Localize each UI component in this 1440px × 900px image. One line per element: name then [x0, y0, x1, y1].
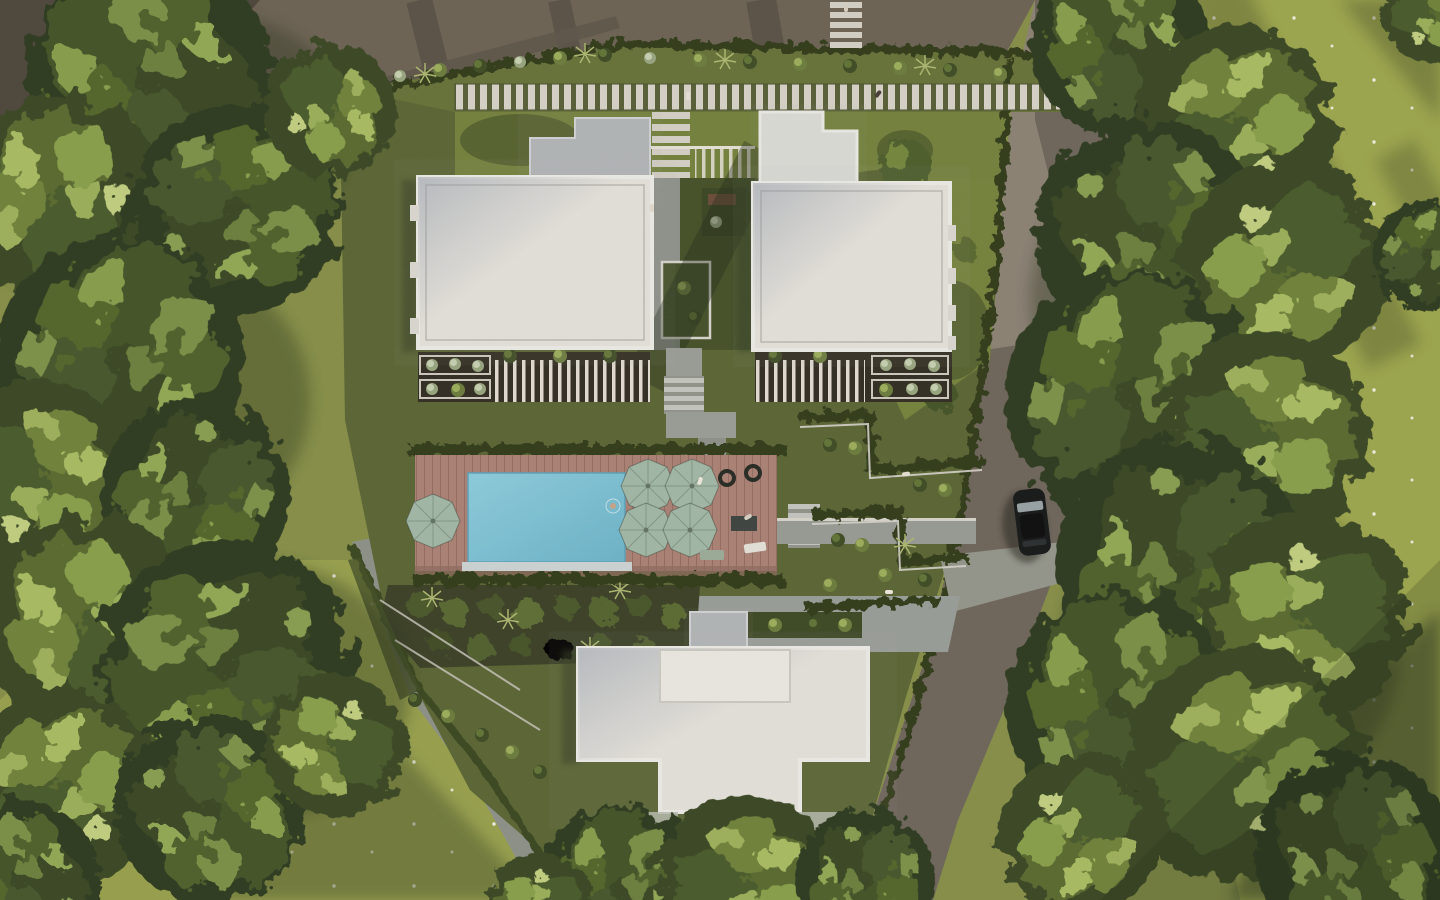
color-grade-overlay	[0, 0, 1440, 900]
aerial-site-plan	[0, 0, 1440, 900]
screenshot-root	[0, 0, 1440, 900]
